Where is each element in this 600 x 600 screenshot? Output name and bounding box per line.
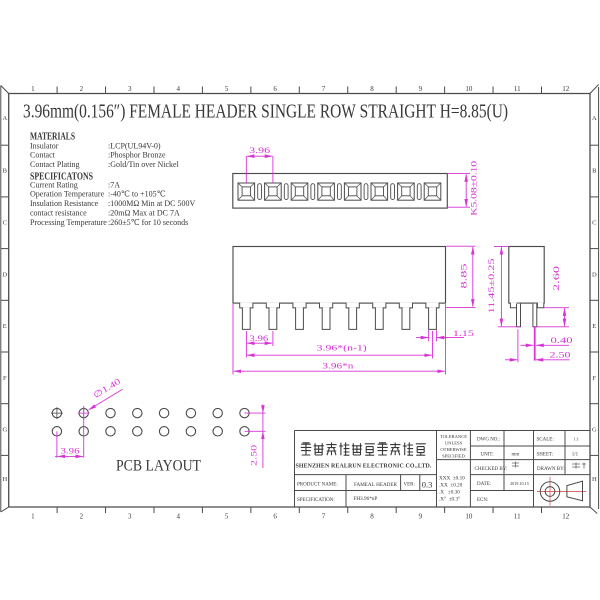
svg-text:2: 2	[80, 513, 84, 521]
svg-text:3.96*n: 3.96*n	[322, 360, 354, 370]
svg-text:0.40: 0.40	[551, 335, 573, 345]
svg-text:6: 6	[273, 513, 277, 521]
svg-text:2.50: 2.50	[249, 445, 259, 466]
svg-text:TOLERANCE: TOLERANCE	[440, 434, 467, 439]
svg-text:PCB LAYOUT: PCB LAYOUT	[116, 458, 201, 475]
svg-text:1:1: 1:1	[574, 436, 579, 441]
svg-text:12: 12	[562, 85, 570, 93]
svg-text:DRAWN BY:: DRAWN BY:	[537, 467, 565, 472]
svg-text:Insulator: Insulator	[30, 141, 59, 150]
svg-text:F: F	[592, 375, 596, 382]
svg-text:FH3.96*nP: FH3.96*nP	[354, 496, 378, 502]
svg-text:SHEET:: SHEET:	[537, 452, 554, 457]
svg-text:H: H	[2, 476, 7, 483]
svg-text:Contact Plating: Contact Plating	[30, 160, 80, 169]
svg-text:PRODUCT NAME:: PRODUCT NAME:	[297, 483, 338, 488]
svg-text:OTHERWISE: OTHERWISE	[440, 447, 466, 452]
svg-text::-40℃ to +105℃: :-40℃ to +105℃	[108, 190, 166, 199]
svg-text:A: A	[592, 115, 597, 122]
svg-text:11: 11	[514, 513, 521, 521]
svg-text:H: H	[592, 476, 597, 483]
svg-text:4: 4	[176, 513, 180, 521]
svg-text:6: 6	[273, 85, 277, 93]
svg-text:FAMEAL HEADER: FAMEAL HEADER	[354, 482, 398, 488]
svg-text:12: 12	[562, 513, 570, 521]
svg-text:7: 7	[322, 85, 326, 93]
svg-text:F: F	[3, 375, 7, 382]
svg-text:XXX ±0.10: XXX ±0.10	[439, 476, 465, 482]
svg-text:1.15: 1.15	[453, 328, 474, 338]
svg-text:E: E	[3, 323, 7, 330]
svg-text:0.3: 0.3	[422, 479, 433, 489]
svg-text:K5.08±0.10: K5.08±0.10	[469, 161, 479, 216]
svg-text:DATE:: DATE:	[477, 482, 491, 487]
svg-text:Operation Temperature: Operation Temperature	[30, 190, 105, 199]
svg-text::7A: :7A	[108, 180, 120, 189]
svg-text:5: 5	[225, 513, 229, 521]
svg-text:UNIT:: UNIT:	[481, 452, 494, 457]
svg-text:3: 3	[128, 85, 132, 93]
svg-text:Insulation Resistance: Insulation Resistance	[30, 199, 99, 208]
svg-text:2: 2	[80, 85, 84, 93]
svg-text:3.96*(n-1): 3.96*(n-1)	[317, 342, 367, 352]
svg-text:10: 10	[465, 85, 473, 93]
svg-text:Contact: Contact	[30, 151, 56, 160]
svg-text:1: 1	[31, 85, 35, 93]
svg-text:B: B	[592, 168, 597, 175]
svg-text:Current Rating: Current Rating	[30, 180, 78, 189]
svg-text:3.96: 3.96	[249, 145, 270, 155]
svg-text:C: C	[592, 220, 596, 227]
svg-text:7: 7	[322, 513, 326, 521]
svg-text:9: 9	[419, 85, 423, 93]
svg-text:.X ±0.30: .X ±0.30	[439, 490, 460, 496]
svg-text:10: 10	[465, 513, 473, 521]
svg-text:11.45±0.25: 11.45±0.25	[486, 259, 496, 314]
svg-text:5: 5	[225, 85, 229, 93]
svg-text:8.85: 8.85	[459, 264, 469, 289]
svg-text:contact resistance: contact resistance	[30, 209, 87, 218]
svg-text:3: 3	[128, 513, 132, 521]
svg-text:SPECIFICATION:: SPECIFICATION:	[297, 498, 335, 503]
svg-text:SCALE:: SCALE:	[537, 438, 554, 443]
svg-text:CHECKED BY:: CHECKED BY:	[475, 467, 508, 472]
svg-text:SHENZHEN REALRUN ELECTRONIC CO: SHENZHEN REALRUN ELECTRONIC CO.,LTD.	[295, 463, 431, 469]
svg-text:mm: mm	[512, 452, 520, 457]
svg-text:B: B	[3, 168, 8, 175]
svg-text::260±5℃ for 10 seconds: :260±5℃ for 10 seconds	[108, 218, 188, 227]
svg-text:E: E	[592, 323, 596, 330]
svg-text:UNLESS: UNLESS	[445, 440, 463, 445]
svg-text:2019.10.15: 2019.10.15	[510, 481, 529, 486]
svg-text:.XX ±0.20: .XX ±0.20	[439, 483, 463, 489]
svg-text:ECN:: ECN:	[477, 498, 488, 503]
svg-text::Gold/Tin over Nickel: :Gold/Tin over Nickel	[108, 160, 180, 169]
svg-text:SPECIFIED: SPECIFIED	[442, 453, 465, 458]
svg-text:2.60: 2.60	[551, 266, 561, 291]
svg-text:G: G	[2, 427, 7, 434]
svg-text:A: A	[2, 115, 7, 122]
svg-text:D: D	[592, 271, 597, 278]
svg-text:.X° ±0.3°: .X° ±0.3°	[439, 496, 460, 503]
svg-text:3.96mm(0.156″) FEMALE HEADER S: 3.96mm(0.156″) FEMALE HEADER SINGLE ROW …	[23, 101, 508, 123]
svg-text:3.96: 3.96	[61, 445, 80, 455]
svg-text:2.50: 2.50	[550, 350, 571, 360]
svg-text:C: C	[3, 220, 7, 227]
svg-text:4: 4	[176, 85, 180, 93]
svg-text::20mΩ Max at DC 7A: :20mΩ Max at DC 7A	[108, 209, 180, 218]
svg-text:VER:: VER:	[404, 483, 415, 488]
svg-text:Processing Temperature: Processing Temperature	[30, 218, 107, 227]
svg-text::LCP(UL94V-0): :LCP(UL94V-0)	[108, 141, 161, 150]
svg-text:9: 9	[419, 513, 423, 521]
svg-text:3.96: 3.96	[249, 333, 268, 343]
svg-text:8: 8	[370, 85, 374, 93]
svg-text:1/1: 1/1	[572, 453, 579, 458]
svg-text:D: D	[2, 271, 7, 278]
svg-text:1: 1	[31, 513, 35, 521]
svg-text:11: 11	[514, 85, 521, 93]
svg-text:G: G	[592, 427, 597, 434]
svg-text:DWG NO.:: DWG NO.:	[477, 438, 500, 443]
svg-text::1000MΩ Min at DC 500V: :1000MΩ Min at DC 500V	[108, 199, 196, 208]
svg-text::Phosphor Bronze: :Phosphor Bronze	[108, 151, 166, 160]
svg-text:8: 8	[370, 513, 374, 521]
